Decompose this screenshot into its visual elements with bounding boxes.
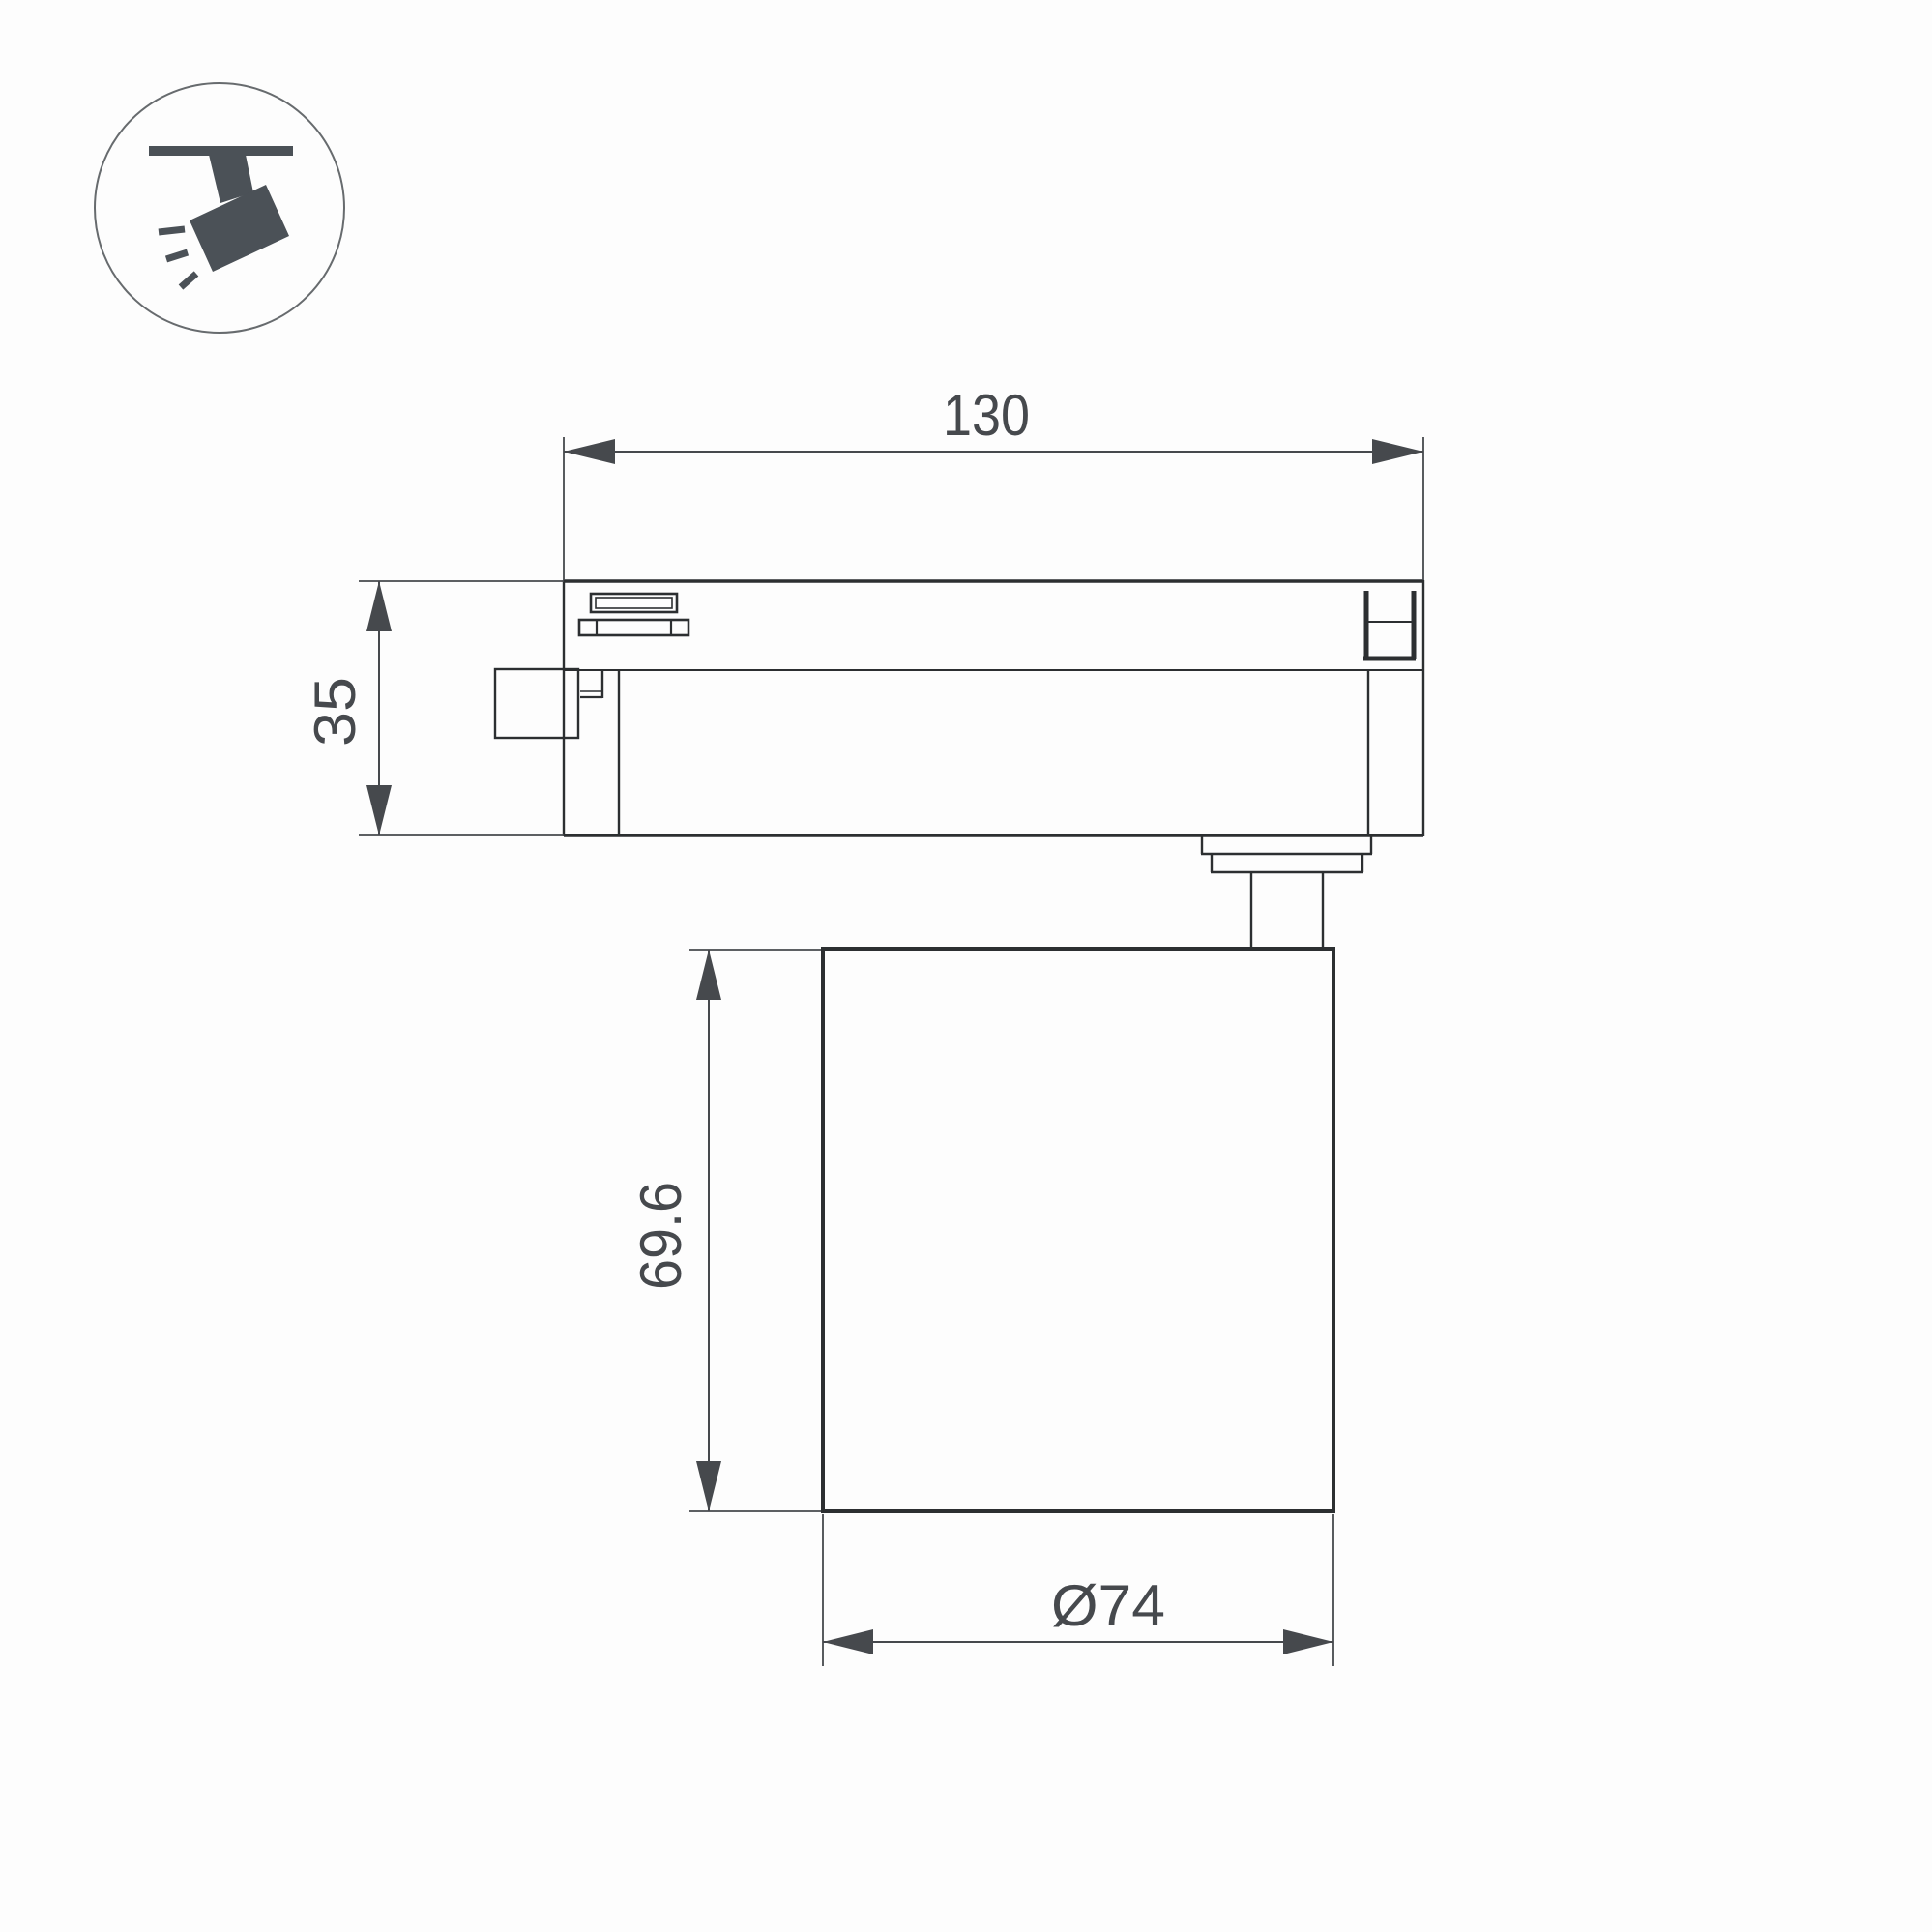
adapter-right-channel — [1363, 591, 1416, 659]
mount-steps-and-stem — [1201, 835, 1372, 949]
arrowhead-up — [366, 581, 392, 631]
dimension-35: 35 — [303, 581, 564, 835]
dimension-74: Ø74 — [823, 1514, 1333, 1666]
lamp-body — [823, 949, 1333, 1511]
drawing-canvas: 130 35 69.6 Ø74 — [0, 0, 1932, 1932]
dim-label-130: 130 — [943, 383, 1030, 448]
adapter-contact-clips — [579, 594, 688, 635]
icon-ceiling-bar — [149, 146, 293, 156]
dim-label-74: Ø74 — [1051, 1573, 1165, 1638]
arrowhead-right — [1283, 1629, 1333, 1654]
arrowhead-down — [366, 785, 392, 835]
arrowhead-left — [564, 439, 615, 464]
clip-upper-inner — [596, 598, 672, 608]
dimension-69-6: 69.6 — [629, 950, 821, 1511]
clip-upper-outer — [591, 594, 677, 612]
track-spotlight-icon — [95, 83, 344, 333]
light-ray — [159, 229, 185, 232]
dim-label-35: 35 — [303, 677, 367, 746]
dimension-130: 130 — [564, 383, 1423, 580]
arrowhead-right — [1372, 439, 1423, 464]
technical-drawing: 130 35 69.6 Ø74 — [0, 0, 1932, 1932]
dim-label-69-6: 69.6 — [629, 1182, 693, 1290]
latch-tab — [495, 669, 578, 738]
adapter-side-latch — [495, 669, 602, 738]
arrowhead-up — [696, 950, 721, 1000]
arrowhead-down — [696, 1461, 721, 1511]
track-adapter-outline — [564, 580, 1423, 836]
arrowhead-left — [823, 1629, 873, 1654]
